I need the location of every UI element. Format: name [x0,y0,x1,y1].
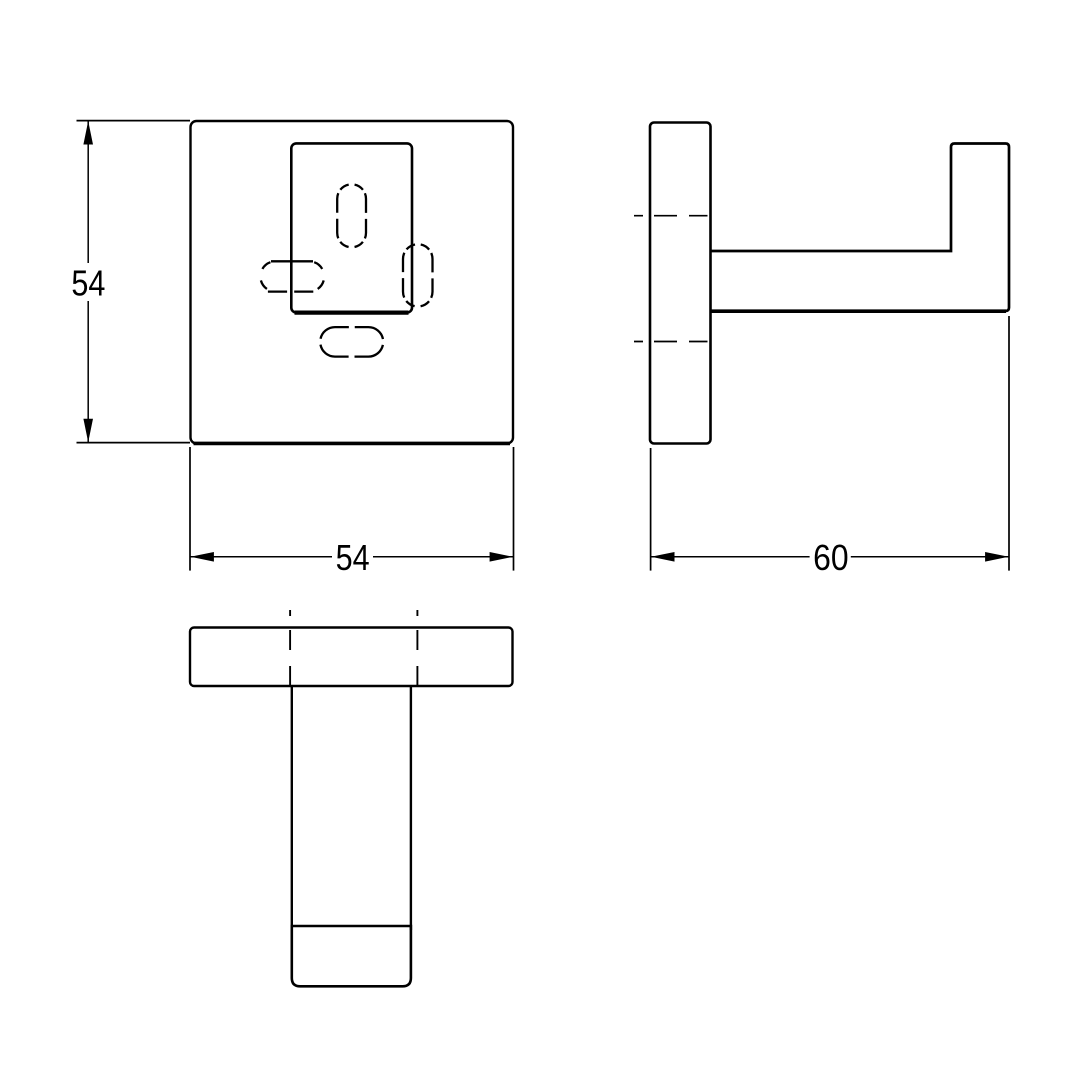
svg-text:54: 54 [71,262,105,303]
svg-text:54: 54 [336,537,370,578]
svg-text:60: 60 [813,537,849,578]
